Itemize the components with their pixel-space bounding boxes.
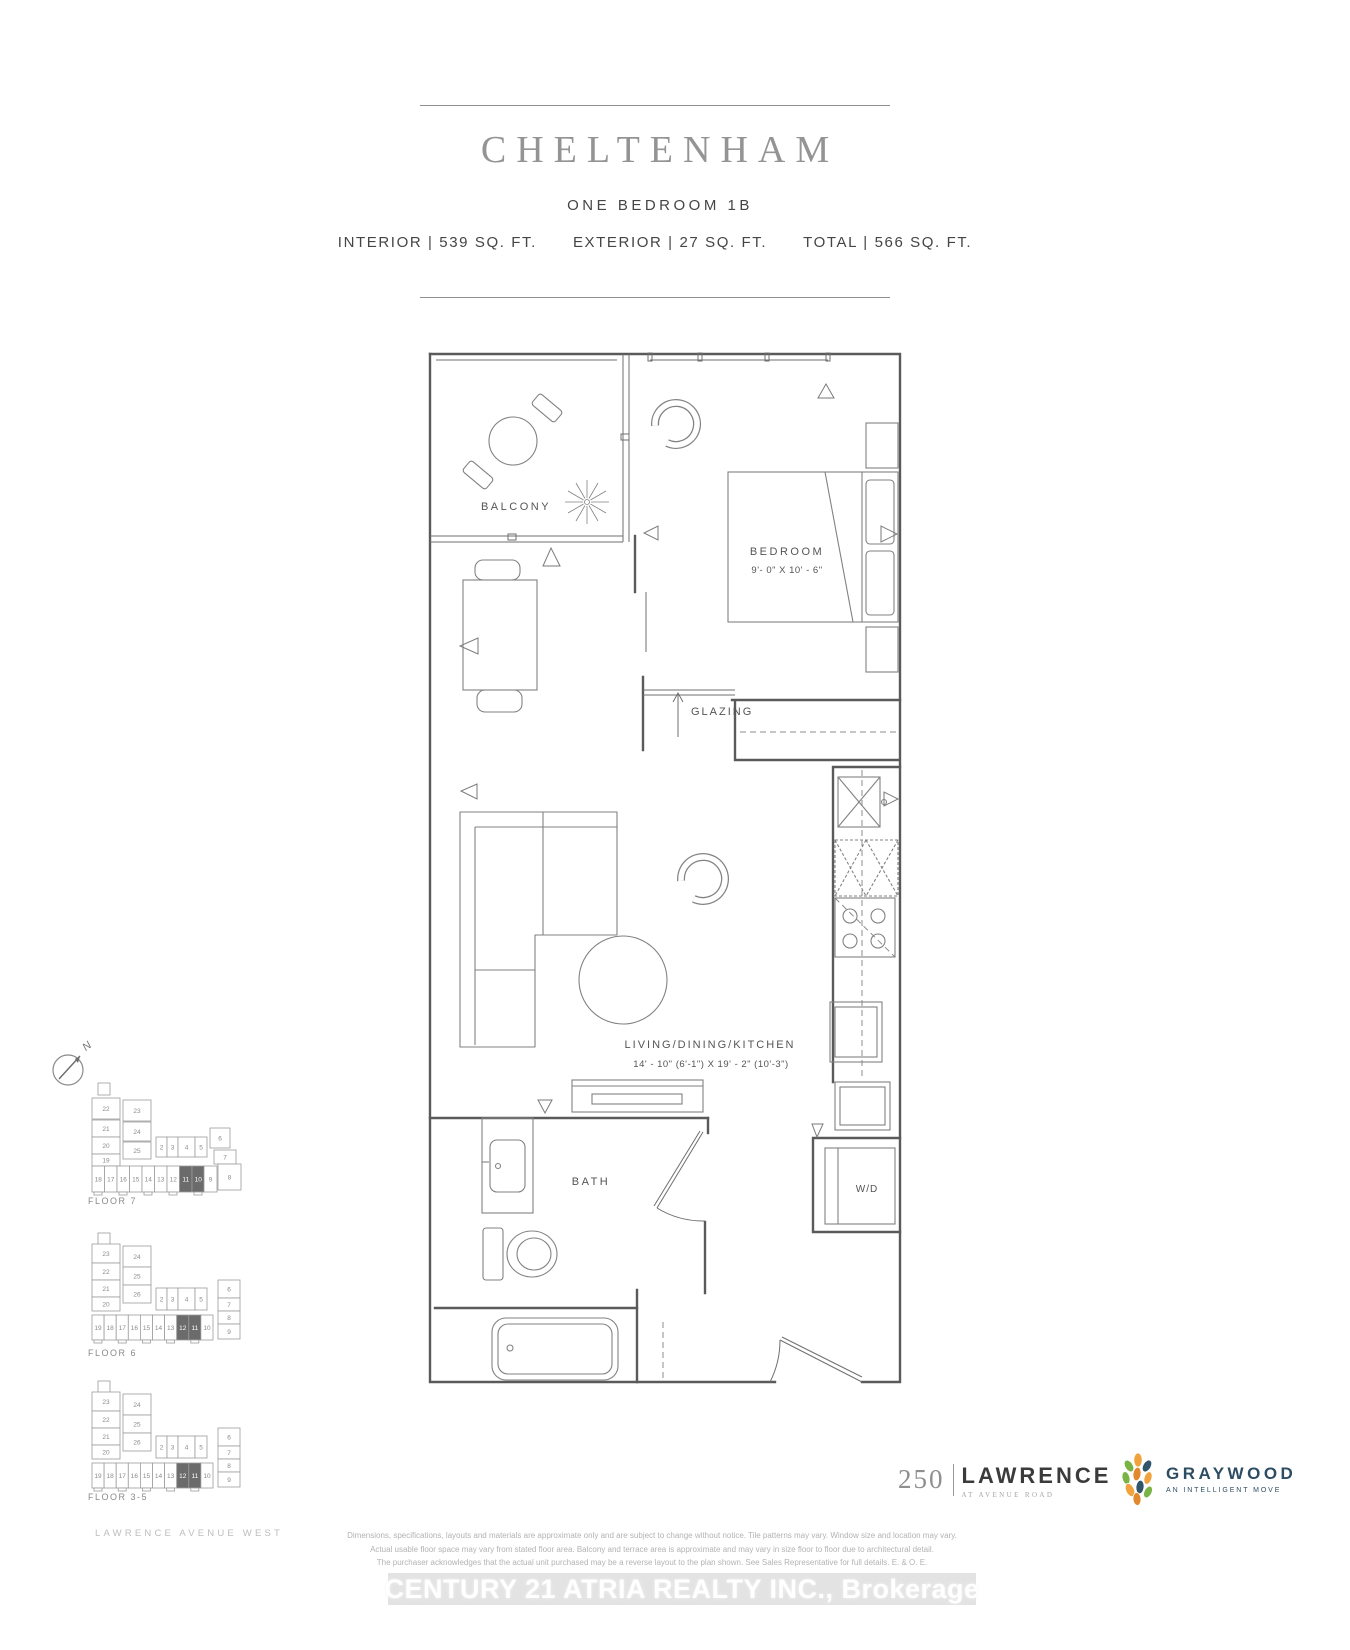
keyplate-unit-cell bbox=[98, 1083, 110, 1095]
keyplate-svg: 2221201923242523456718171615141312111098 bbox=[88, 1080, 243, 1196]
keyplate-unit-number: 14 bbox=[145, 1177, 153, 1184]
keyplate-unit-number: 15 bbox=[143, 1325, 151, 1332]
bedroom-dims: 9'- 0" X 10' - 6" bbox=[751, 565, 822, 576]
keyplate-unit-number: 22 bbox=[102, 1417, 110, 1424]
keyplate-unit-number: 20 bbox=[102, 1143, 110, 1150]
lawrence-logo: 250 LAWRENCE AT AVENUE ROAD bbox=[898, 1464, 1111, 1499]
keyplate-unit-number: 26 bbox=[133, 1440, 141, 1447]
keyplate-floor-7-label: FLOOR 7 bbox=[88, 1196, 137, 1206]
keyplate-floor-7: 2221201923242523456718171615141312111098 bbox=[88, 1080, 243, 1201]
keyplate-unit-number: 8 bbox=[227, 1315, 231, 1322]
keyplate-unit-cell bbox=[191, 1340, 199, 1343]
keyplate-unit-cell bbox=[94, 1340, 102, 1343]
keyplate-unit-number: 4 bbox=[185, 1445, 189, 1452]
living-label: LIVING/DINING/KITCHEN bbox=[625, 1039, 796, 1051]
compass-north-label: N bbox=[80, 1039, 94, 1053]
keyplate-unit-number: 12 bbox=[170, 1177, 178, 1184]
floor-plan-sheet: CHELTENHAM ONE BEDROOM 1B INTERIOR | 539… bbox=[0, 0, 1350, 1650]
keyplate-unit-number: 11 bbox=[191, 1325, 198, 1332]
top-divider bbox=[420, 105, 890, 106]
keyplate-unit-cell bbox=[142, 1488, 150, 1491]
lawrence-logo-name: LAWRENCE bbox=[962, 1464, 1112, 1488]
keyplate-unit-number: 25 bbox=[133, 1148, 141, 1155]
keyplate-unit-cell bbox=[142, 1340, 150, 1343]
keyplate-unit-number: 25 bbox=[133, 1274, 141, 1281]
page-title: CHELTENHAM bbox=[410, 128, 910, 172]
keyplate-unit-number: 18 bbox=[107, 1325, 115, 1332]
keyplate-unit-number: 21 bbox=[102, 1286, 110, 1293]
unit-type-subtitle: ONE BEDROOM 1B bbox=[410, 197, 910, 214]
lawrence-logo-tagline: AT AVENUE ROAD bbox=[962, 1491, 1112, 1499]
keyplate-unit-number: 12 bbox=[179, 1473, 187, 1480]
keyplate-unit-number: 19 bbox=[102, 1158, 110, 1165]
keyplate-unit-cell bbox=[167, 1340, 175, 1343]
keyplate-unit-number: 13 bbox=[157, 1177, 165, 1184]
keyplate-unit-number: 4 bbox=[185, 1145, 189, 1152]
keyplate-unit-number: 23 bbox=[102, 1399, 110, 1406]
graywood-leaf-icon bbox=[1120, 1452, 1156, 1506]
disclaimer: Dimensions, specifications, layouts and … bbox=[322, 1529, 982, 1570]
keyplate-unit-number: 5 bbox=[199, 1145, 203, 1152]
keyplate-unit-number: 15 bbox=[143, 1473, 151, 1480]
keyplate-unit-number: 12 bbox=[179, 1325, 187, 1332]
keyplate-floor-3-5: 2322212024252623456789191817161514131211… bbox=[88, 1378, 243, 1499]
keyplate-floor-3-5-label: FLOOR 3-5 bbox=[88, 1492, 148, 1502]
keyplate-unit-number: 15 bbox=[132, 1177, 140, 1184]
street-label: LAWRENCE AVENUE WEST bbox=[95, 1528, 283, 1539]
keyplate-svg: 2322212024252623456789191817161514131211… bbox=[88, 1378, 243, 1494]
keyplate-unit-number: 24 bbox=[133, 1129, 141, 1136]
keyplate-unit-number: 5 bbox=[199, 1297, 203, 1304]
balcony-label: BALCONY bbox=[481, 501, 551, 513]
stat-total: TOTAL | 566 SQ. FT. bbox=[803, 234, 972, 251]
keyplate-unit-number: 24 bbox=[133, 1402, 141, 1409]
graywood-logo-tagline: AN INTELLIGENT MOVE bbox=[1166, 1487, 1296, 1494]
keyplate-unit-cell bbox=[118, 1488, 126, 1491]
keyplate-unit-number: 6 bbox=[227, 1287, 231, 1294]
keyplate-unit-number: 7 bbox=[227, 1302, 231, 1309]
washer-dryer-label: W/D bbox=[856, 1184, 878, 1195]
keyplate-unit-number: 8 bbox=[227, 1463, 231, 1470]
tree-icon bbox=[565, 480, 609, 524]
graywood-logo: GRAYWOOD AN INTELLIGENT MOVE bbox=[1120, 1452, 1296, 1506]
keyplate-unit-cell bbox=[167, 1488, 175, 1491]
keyplate-unit-number: 6 bbox=[227, 1435, 231, 1442]
keyplate-unit-number: 4 bbox=[185, 1297, 189, 1304]
keyplate-unit-number: 16 bbox=[120, 1177, 128, 1184]
keyplate-floor-6-label: FLOOR 6 bbox=[88, 1348, 137, 1358]
keyplate-unit-cell bbox=[191, 1488, 199, 1491]
keyplate-unit-number: 8 bbox=[228, 1175, 232, 1182]
keyplate-unit-cell bbox=[94, 1488, 102, 1491]
keyplate-unit-number: 10 bbox=[203, 1473, 211, 1480]
keyplate-unit-number: 26 bbox=[133, 1292, 141, 1299]
keyplate-unit-number: 18 bbox=[107, 1473, 115, 1480]
keyplate-unit-cell bbox=[94, 1192, 102, 1195]
keyplate-unit-number: 19 bbox=[94, 1325, 102, 1332]
keyplate-unit-number: 2 bbox=[160, 1297, 164, 1304]
keyplate-unit-number: 16 bbox=[131, 1473, 139, 1480]
keyplate-unit-cell bbox=[98, 1233, 110, 1245]
keyplate-unit-number: 22 bbox=[102, 1269, 110, 1276]
keyplate-unit-number: 14 bbox=[155, 1325, 163, 1332]
keyplate-unit-number: 23 bbox=[133, 1108, 141, 1115]
keyplate-svg: 2322212024252623456789191817161514131211… bbox=[88, 1230, 243, 1346]
keyplate-unit-number: 19 bbox=[94, 1473, 102, 1480]
keyplate-unit-number: 16 bbox=[131, 1325, 139, 1332]
keyplate-unit-number: 9 bbox=[209, 1177, 213, 1184]
header-bottom-divider bbox=[420, 297, 890, 298]
living-dims: 14' - 10" (6'-1") X 19' - 2" (10'-3") bbox=[633, 1059, 788, 1070]
bath-label: BATH bbox=[572, 1176, 611, 1188]
lawrence-logo-number: 250 bbox=[898, 1464, 945, 1494]
keyplate-unit-number: 9 bbox=[227, 1477, 231, 1484]
keyplate-unit-number: 17 bbox=[119, 1325, 127, 1332]
keyplate-unit-number: 7 bbox=[227, 1450, 231, 1457]
keyplate-unit-number: 6 bbox=[218, 1136, 222, 1143]
keyplate-unit-cell bbox=[118, 1340, 126, 1343]
keyplate-floor-6: 2322212024252623456789191817161514131211… bbox=[88, 1230, 243, 1351]
keyplate-unit-number: 25 bbox=[133, 1422, 141, 1429]
glazing-label: GLAZING bbox=[691, 706, 753, 718]
keyplate-unit-number: 11 bbox=[182, 1177, 189, 1184]
lawrence-logo-divider bbox=[953, 1464, 954, 1496]
keyplate-unit-cell bbox=[98, 1381, 110, 1393]
graywood-logo-name: GRAYWOOD bbox=[1166, 1464, 1296, 1484]
keyplate-unit-cell bbox=[194, 1192, 202, 1195]
stat-exterior: EXTERIOR | 27 SQ. FT. bbox=[573, 234, 767, 251]
keyplate-unit-cell bbox=[144, 1192, 152, 1195]
bedroom-label: BEDROOM bbox=[750, 546, 824, 558]
keyplate-unit-number: 17 bbox=[119, 1473, 127, 1480]
doors bbox=[654, 693, 862, 1382]
disclaimer-line-2: Actual usable floor space may vary from … bbox=[322, 1543, 982, 1557]
room-labels: BALCONY BEDROOM 9'- 0" X 10' - 6" GLAZIN… bbox=[481, 501, 878, 1195]
keyplate-unit-number: 3 bbox=[171, 1445, 175, 1452]
floor-plan-drawing: BALCONY BEDROOM 9'- 0" X 10' - 6" GLAZIN… bbox=[410, 340, 910, 1400]
disclaimer-line-1: Dimensions, specifications, layouts and … bbox=[322, 1529, 982, 1543]
dashed-lines bbox=[663, 732, 896, 1380]
window-lines bbox=[430, 353, 830, 695]
keyplate-unit-number: 23 bbox=[102, 1251, 110, 1258]
keyplate-unit-number: 7 bbox=[223, 1155, 227, 1162]
keyplate-unit-number: 10 bbox=[195, 1177, 203, 1184]
keyplate-unit-number: 3 bbox=[171, 1145, 175, 1152]
keyplate-unit-number: 10 bbox=[203, 1325, 211, 1332]
area-stats: INTERIOR | 539 SQ. FT. EXTERIOR | 27 SQ.… bbox=[275, 234, 1035, 251]
disclaimer-line-3: The purchaser acknowledges that the actu… bbox=[322, 1556, 982, 1570]
keyplate-unit-number: 21 bbox=[102, 1126, 110, 1133]
keyplate-unit-number: 20 bbox=[102, 1302, 110, 1309]
keyplate-unit-number: 24 bbox=[133, 1254, 141, 1261]
keyplate-unit-number: 2 bbox=[160, 1445, 164, 1452]
keyplate-unit-number: 13 bbox=[167, 1325, 175, 1332]
keyplate-unit-number: 18 bbox=[95, 1177, 103, 1184]
keyplate-unit-number: 14 bbox=[155, 1473, 163, 1480]
keyplate-unit-number: 5 bbox=[199, 1445, 203, 1452]
keyplate-unit-number: 11 bbox=[191, 1473, 198, 1480]
keyplate-unit-cell bbox=[119, 1192, 127, 1195]
keyplate-unit-number: 2 bbox=[160, 1145, 164, 1152]
keyplate-unit-number: 17 bbox=[107, 1177, 115, 1184]
stat-interior: INTERIOR | 539 SQ. FT. bbox=[338, 234, 537, 251]
keyplate-unit-number: 22 bbox=[102, 1106, 110, 1113]
keyplate-unit-number: 13 bbox=[167, 1473, 175, 1480]
keyplate-unit-number: 9 bbox=[227, 1329, 231, 1336]
keyplate-unit-number: 3 bbox=[171, 1297, 175, 1304]
keyplate-unit-cell bbox=[169, 1192, 177, 1195]
keyplate-unit-number: 21 bbox=[102, 1434, 110, 1441]
keyplate-unit-number: 20 bbox=[102, 1450, 110, 1457]
brokerage-watermark: CENTURY 21 ATRIA REALTY INC., Brokerage bbox=[388, 1573, 976, 1605]
